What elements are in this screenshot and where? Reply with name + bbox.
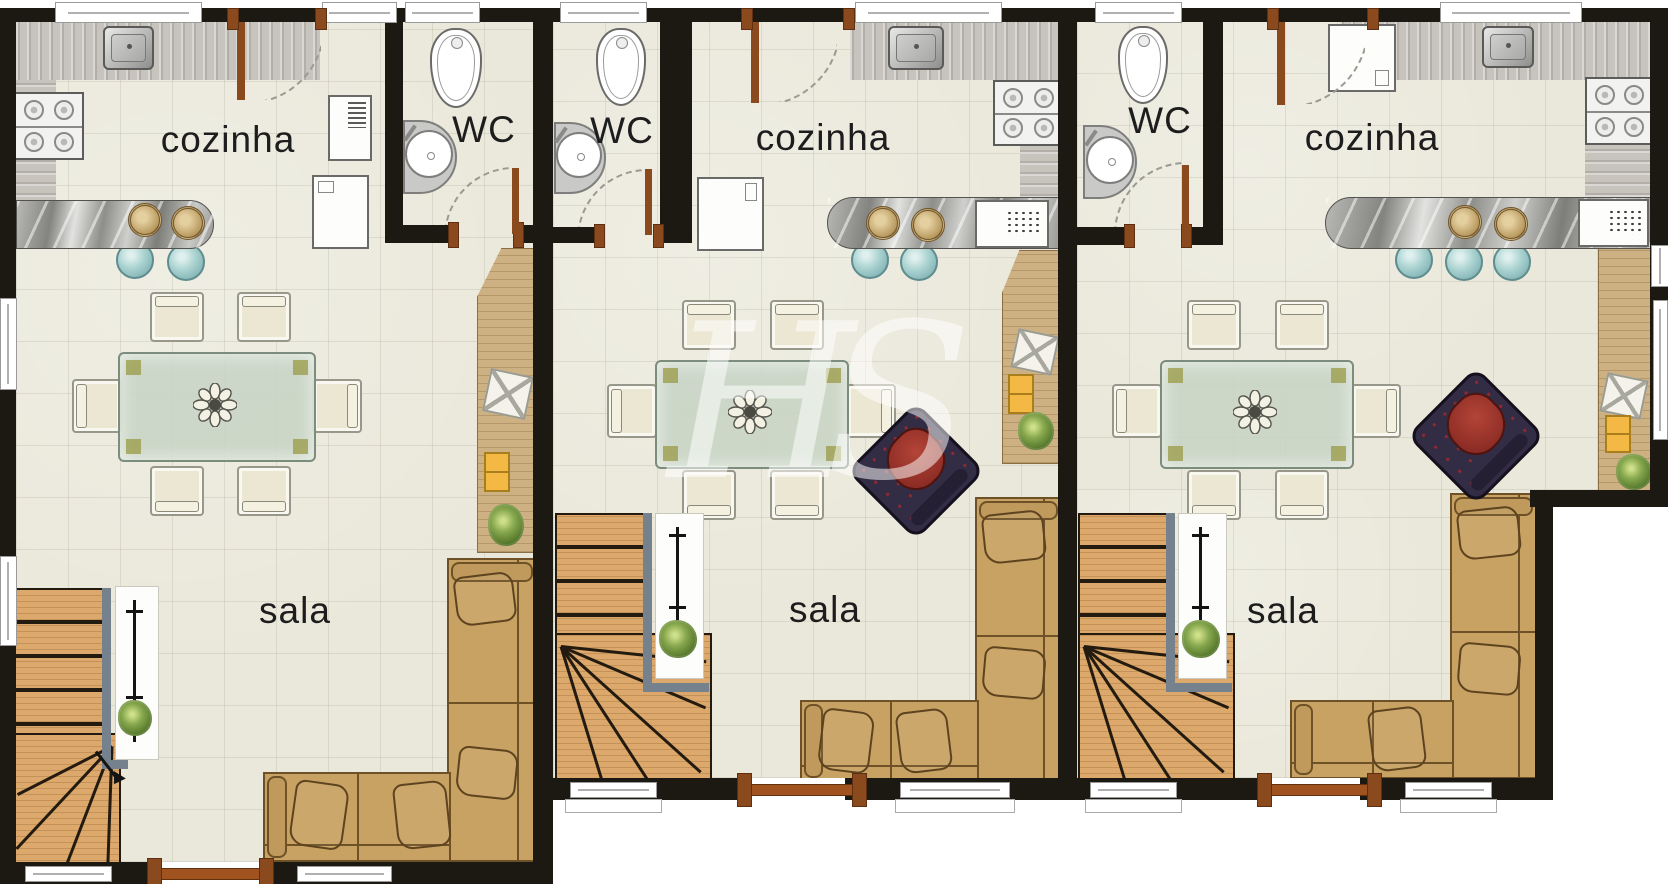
door-jamb [594,224,605,248]
dining-chair [312,379,362,433]
door-swing-arc [759,24,837,102]
room-label-kitchen: cozinha [161,119,296,161]
wc-sink [405,130,453,178]
floor-plan: cozinha WC sala WC cozinha sala WC cozin… [0,0,1668,884]
wall [1203,8,1223,245]
wall [1077,227,1130,245]
sofa-cushion [1456,505,1523,561]
door-jamb [259,858,274,884]
dining-chair [682,300,736,350]
room-label-kitchen: cozinha [1305,117,1440,159]
front-door [147,868,274,880]
room-label-kitchen: cozinha [756,117,891,159]
dining-chair [1275,470,1329,520]
dishwasher [1578,199,1649,247]
wall-top [0,8,1668,22]
window [1095,2,1182,23]
plant [1616,454,1652,490]
kitchen-sink [103,26,154,70]
room-label-living: sala [789,589,861,631]
sofa-cushion [455,745,520,801]
window [560,2,647,23]
door-jamb [737,773,752,807]
door-leaf [237,22,245,100]
dining-chair [770,470,824,520]
door-jamb [1124,224,1135,248]
dining-chair [237,292,291,342]
plant [1018,412,1054,450]
door-swing-arc [1285,24,1365,104]
stove [1585,77,1654,145]
side-table [484,452,510,492]
wall-party [1058,8,1077,800]
toilet [596,28,646,106]
window-sill [1400,799,1497,813]
door-jamb [1267,8,1279,30]
deck-pillow [482,368,534,420]
sofa-cushion [1456,641,1522,696]
deck-pillow [1599,372,1648,420]
window [1653,300,1668,440]
table-centerpiece [1233,390,1277,434]
front-door [1257,784,1382,796]
window [1090,782,1177,798]
window [405,2,480,23]
kitchen-sink [888,26,944,70]
direction-cross [1192,606,1209,609]
door-jamb [741,8,753,30]
door-leaf [1277,22,1285,105]
door-jamb [653,224,664,248]
stair-rail [1166,683,1232,692]
stair-rail [102,588,111,768]
window-sill [895,799,1015,813]
staircase [13,588,109,742]
window [0,298,17,390]
room-label-wc: WC [1128,100,1192,142]
sofa-cushion [392,779,453,850]
door-jamb [315,8,327,30]
dining-chair [1112,384,1162,438]
window [0,556,17,646]
sofa-cushion [816,707,875,775]
plant [118,700,152,736]
dining-chair [150,466,204,516]
wc-sink [1086,136,1134,184]
sofa-cushion [452,571,518,628]
direction-cross [669,534,686,537]
side-table [1605,415,1631,453]
door-jamb [448,222,459,248]
direction-cross [669,606,686,609]
kitchen-sink [1482,26,1534,68]
stair-rail [643,513,652,689]
dining-chair [1351,384,1401,438]
vent-cabinet [328,95,372,161]
window [1440,2,1582,23]
door-jamb [147,858,162,884]
room-label-living: sala [1247,590,1319,632]
door-jamb [1257,773,1272,807]
plant [1182,620,1220,658]
toilet [1118,26,1168,104]
bar-bowl [171,206,205,240]
sofa-cushion [981,645,1047,700]
sofa-cushion [981,509,1048,565]
door-leaf [751,22,759,103]
plant [488,504,524,546]
toilet [430,28,482,108]
window [1405,782,1492,798]
door-jamb [227,8,239,30]
bar-bowl [911,208,945,242]
fridge [697,177,764,251]
direction-cross [126,696,143,699]
sofa-cushion [288,779,351,852]
window [297,866,392,882]
wall-step [1535,490,1553,800]
staircase [1078,513,1172,645]
window [322,2,397,23]
door-leaf [512,168,519,234]
door-jamb [852,773,867,807]
window [570,782,657,798]
window [855,2,1002,23]
bar-bowl [1494,207,1528,241]
deck-pillow [1010,328,1059,376]
window-sill [1085,799,1182,813]
dining-chair [770,300,824,350]
room-label-living: sala [259,590,331,632]
dining-chair [72,379,122,433]
side-table [1008,374,1034,414]
wall-left [0,8,16,884]
direction-cross [126,610,143,613]
dining-chair [1187,300,1241,350]
door-jamb [1367,773,1382,807]
window [55,2,202,23]
dining-chair [607,384,657,438]
stair-rail [643,683,709,692]
window [25,866,112,882]
bar-bowl [866,206,900,240]
bar-bowl [128,203,162,237]
sofa-cushion [1366,705,1427,773]
dining-chair [150,292,204,342]
window [900,782,1010,798]
bar-bowl [1448,205,1482,239]
wall [553,227,600,243]
table-centerpiece [193,383,237,427]
stair-rail [1166,513,1175,689]
direction-cross [1192,534,1209,537]
sofa-cushion [894,707,953,775]
kitchen-counter [850,22,1058,80]
wall [660,8,692,243]
staircase [555,513,649,645]
dining-chair [237,466,291,516]
direction-cross [1199,527,1202,625]
door-leaf [645,169,652,235]
table-centerpiece [728,390,772,434]
stove [993,80,1064,146]
wall-party [533,8,553,884]
window-sill [565,799,662,813]
cabinet [312,175,369,249]
wall [385,8,403,243]
door-swing-arc [245,24,321,100]
plant [659,620,697,658]
stove [14,92,84,160]
door-jamb [843,8,855,30]
room-label-wc: WC [590,110,654,152]
room-label-wc: WC [452,109,516,151]
window [1651,245,1668,287]
wall [385,225,455,243]
door-jamb [1367,8,1379,30]
dining-chair [1275,300,1329,350]
dishwasher [975,200,1049,248]
door-leaf [1182,165,1189,231]
direction-cross [676,527,679,625]
front-door [740,784,867,796]
